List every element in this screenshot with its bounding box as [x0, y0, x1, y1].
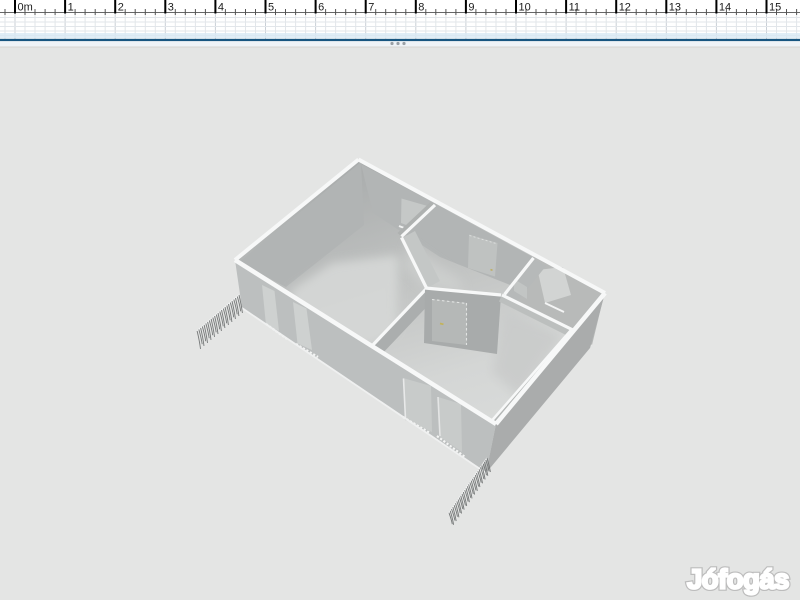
svg-text:3: 3	[168, 2, 174, 14]
svg-text:12: 12	[619, 2, 631, 14]
svg-text:2: 2	[118, 2, 124, 14]
svg-text:15: 15	[769, 2, 781, 14]
svg-text:5: 5	[268, 2, 274, 14]
svg-text:14: 14	[719, 2, 731, 14]
svg-text:13: 13	[669, 2, 681, 14]
svg-text:7: 7	[368, 2, 374, 14]
svg-text:0m: 0m	[18, 2, 33, 14]
svg-text:10: 10	[519, 2, 531, 14]
svg-text:9: 9	[468, 2, 474, 14]
svg-text:6: 6	[318, 2, 324, 14]
svg-text:8: 8	[418, 2, 424, 14]
svg-text:1: 1	[68, 2, 74, 14]
svg-text:4: 4	[218, 2, 224, 14]
svg-text:11: 11	[569, 2, 580, 14]
svg-text:Jófogás: Jófogás	[687, 564, 789, 595]
